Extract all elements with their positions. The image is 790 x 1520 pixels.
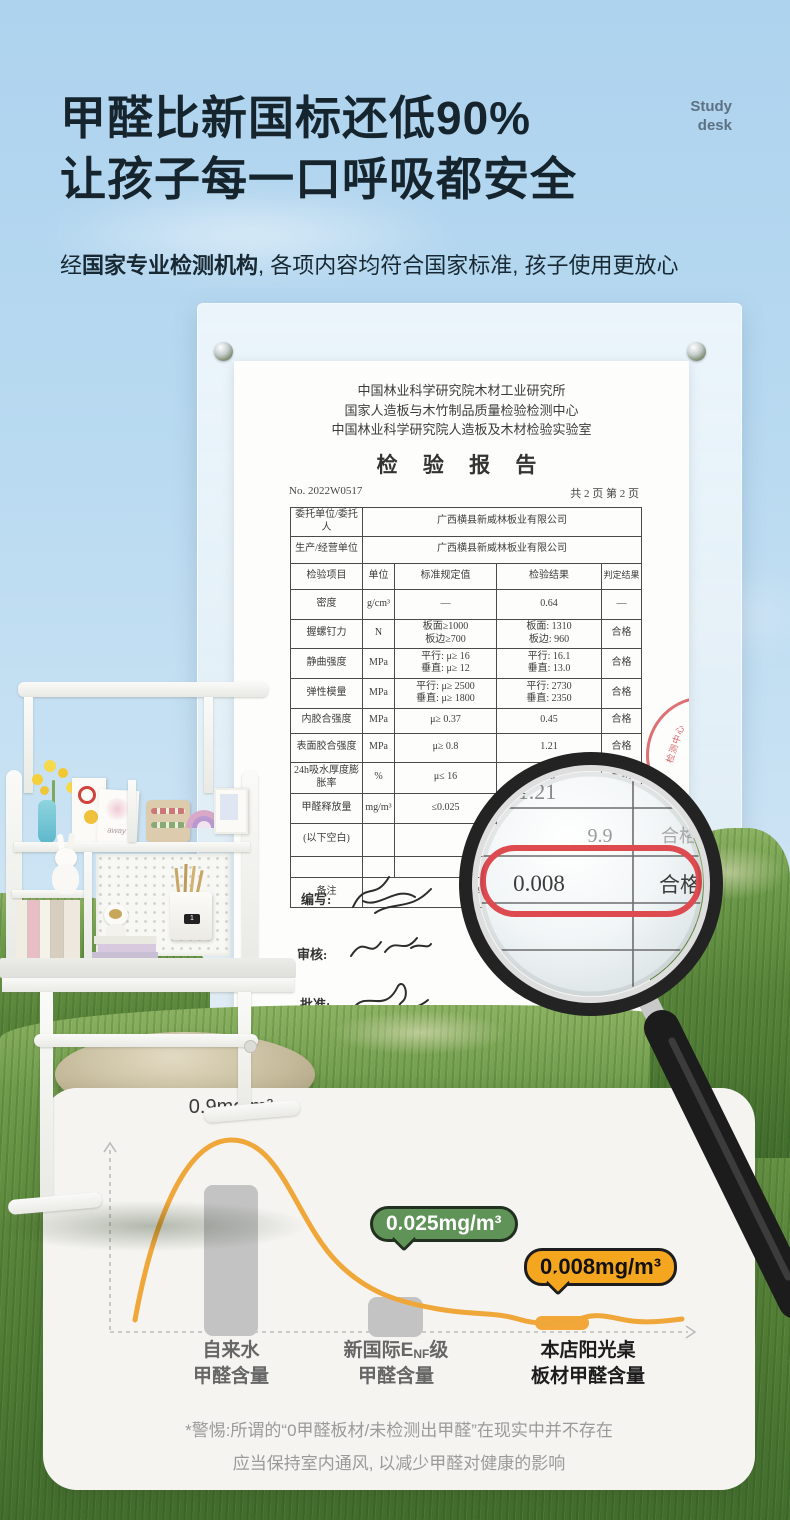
table-row: 委托单位/委托人 广西横县新威林板业有限公司: [291, 507, 642, 536]
col-standard: 标准规定值: [395, 563, 497, 589]
table-row: 弹性模量MPa 平行: μ≥ 2500 垂直: μ≥ 1800平行: 2730 …: [291, 678, 642, 708]
signature-writer: 编写:: [301, 889, 331, 908]
report-org-line1: 中国林业科学研究院木材工业研究所: [234, 381, 689, 401]
signature-scribble: [345, 871, 440, 919]
page-title: 甲醛比新国标还低90% 让孩子每一口呼吸都安全: [60, 88, 577, 209]
signature-scribble: [341, 926, 436, 972]
photo-frame: [214, 788, 248, 834]
desk-frame-post: [204, 697, 213, 793]
warning-footnote: *警惕:所谓的“0甲醛板材/未检测出甲醛”在现实中并不存在 应当保持室内通风, …: [43, 1414, 755, 1480]
category-our-desk: 本店阳光桌 板材甲醛含量: [498, 1338, 678, 1389]
page-subtitle: 经国家专业检测机构, 各项内容均符合国家标准, 孩子使用更放心: [60, 248, 678, 280]
col-item: 检验项目: [291, 563, 363, 589]
lens-mid-value: 9.9: [588, 825, 613, 847]
hutch-mid-shelf: [12, 890, 88, 898]
hutch-divider: [128, 780, 136, 842]
col-judge: 判定结果: [602, 563, 642, 589]
table-row: 握螺钉力N 板面≥1000 板边≥700板面: 1310 板边: 960 合格: [291, 619, 642, 648]
category-tap-water: 自来水 甲醛含量: [141, 1338, 321, 1389]
title-line1: 甲醛比新国标还低90%: [60, 88, 577, 149]
desktop-surface: [0, 958, 296, 978]
stacked-book: [94, 936, 156, 944]
category-enf-standard: 新国际ENF级 甲醛含量: [306, 1338, 486, 1389]
report-org-line2: 国家人造板与木竹制品质量检验检测中心: [234, 401, 689, 421]
abacus-toy: [146, 800, 190, 842]
table-row: 生产/经营单位 广西横县新威林板业有限公司: [291, 536, 642, 563]
magnifier-handle: [662, 1028, 790, 1301]
desktop-front-edge: [2, 978, 294, 992]
magnifier: 1.21 9.9 合格 0.008 合格: [440, 725, 790, 1325]
corner-brand-label: Study desk: [690, 98, 732, 136]
study-desk-photo: away: [0, 652, 302, 1252]
client-label: 委托单位/委托人: [291, 507, 363, 536]
desk-crossbar: [34, 1034, 258, 1047]
client-value: 广西横县新威林板业有限公司: [363, 507, 642, 536]
table-row: 静曲强度MPa 平行: μ≥ 16 垂直: μ≥ 12平行: 16.1 垂直: …: [291, 648, 642, 678]
producer-value: 广西横县新威林板业有限公司: [363, 536, 642, 563]
promo-page: { "header": { "title_line1": "甲醛比新国标还低90…: [0, 0, 790, 1520]
blue-vase: [38, 800, 56, 844]
col-result: 检验结果: [497, 563, 602, 589]
table-header-row: 检验项目 单位 标准规定值 检验结果 判定结果: [291, 563, 642, 589]
screw-pin-icon: [214, 342, 233, 361]
col-unit: 单位: [363, 563, 395, 589]
screw-pin-icon: [687, 342, 706, 361]
producer-label: 生产/经营单位: [291, 536, 363, 563]
report-number: No. 2022W0517: [289, 485, 362, 501]
hutch-column-divider: [84, 852, 92, 958]
report-title: 检 验 报 告: [234, 449, 689, 479]
height-adjust-knob: [244, 1040, 257, 1053]
desk-leg-left: [40, 992, 53, 1204]
desk-top-shelf-bar: [18, 682, 268, 697]
table-row: 密度g/cm³ —0.64 —: [291, 589, 642, 619]
lens-main-value: 0.008: [513, 871, 565, 896]
report-page-info: 共 2 页 第 2 页: [570, 485, 639, 501]
stacked-book: [98, 944, 156, 952]
books-row: [16, 900, 80, 960]
yellow-flowers: [30, 756, 78, 806]
desk-leg-right: [238, 992, 251, 1114]
report-org-line3: 中国林业科学研究院人造板及木材检验实验室: [234, 420, 689, 440]
title-line2: 让孩子每一口呼吸都安全: [60, 149, 577, 210]
desk-foot-right: [204, 1100, 301, 1123]
hutch-shelf-board: [14, 842, 250, 852]
